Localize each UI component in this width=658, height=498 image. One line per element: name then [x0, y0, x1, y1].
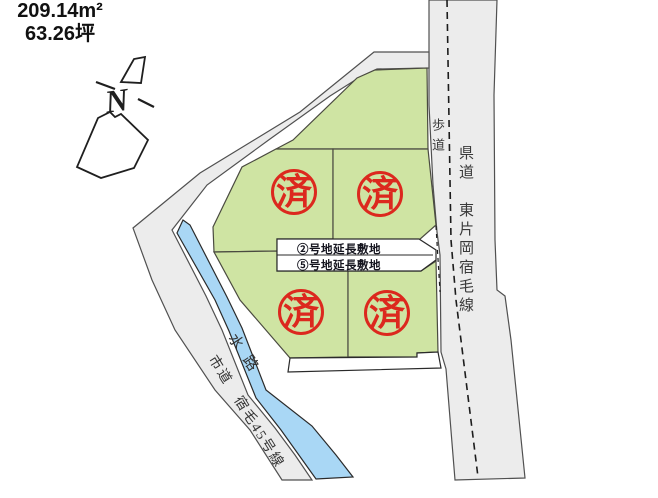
compass-needle-body: [77, 112, 148, 178]
prefectural-road-label: 県道 東片岡宿毛線: [455, 145, 476, 316]
sidewalk-label: 歩道: [428, 118, 447, 158]
extension-plot5-label: ⑤号地延長敷地: [297, 257, 381, 273]
compass-flag: [121, 57, 145, 83]
compass-tick-right: [138, 99, 154, 107]
land-subdivision-map: N 209.14m² 63.26坪 歩道 県道 東片岡宿毛線 水路 市道 宿毛4…: [0, 0, 658, 498]
north-compass: N: [77, 57, 154, 178]
sold-stamp: 済: [271, 169, 317, 215]
sold-stamp: 済: [278, 289, 324, 335]
sold-stamp: 済: [357, 171, 403, 217]
prefectural-road-shape: [429, 0, 525, 480]
extension-plot2-label: ②号地延長敷地: [297, 241, 381, 257]
sold-stamp: 済: [364, 290, 410, 336]
compass-north-label: N: [102, 81, 133, 120]
